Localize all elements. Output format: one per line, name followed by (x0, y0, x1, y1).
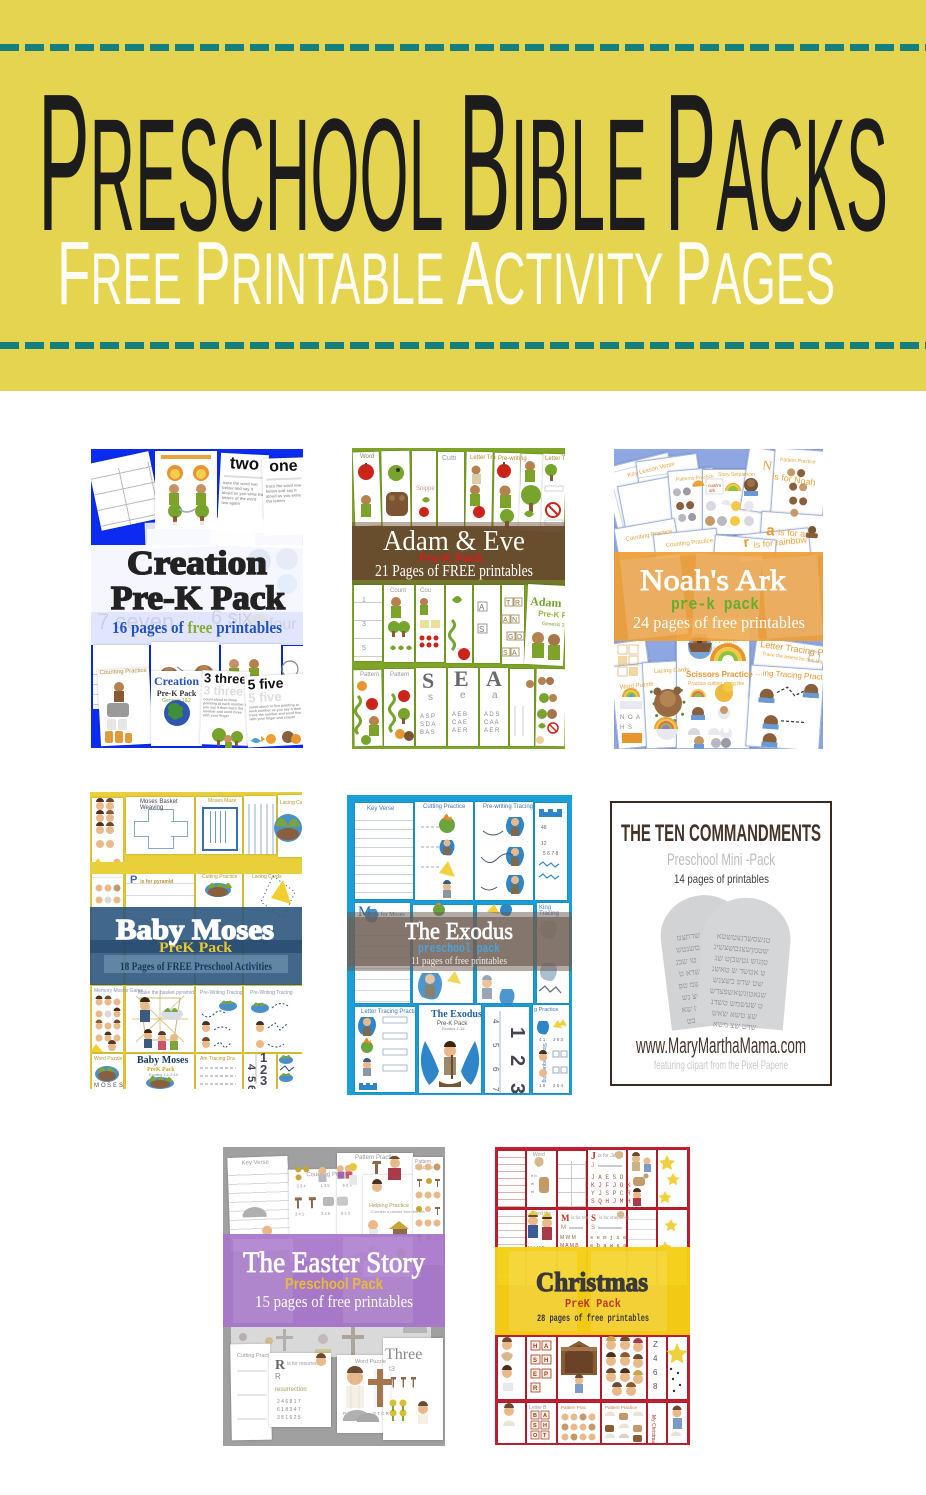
svg-text:15 pages of free printables: 15 pages of free printables (255, 1292, 413, 1311)
svg-text:M W M: M W M (560, 1235, 576, 1241)
svg-text:5: 5 (362, 645, 366, 652)
svg-text:A: A (543, 1413, 547, 1419)
svg-text:2 4 1: 2 4 1 (295, 1211, 305, 1216)
svg-text:Pre-K Pack: Pre-K Pack (111, 580, 285, 617)
svg-text:3: 3 (506, 1083, 528, 1094)
svg-text:B: B (533, 1413, 537, 1419)
svg-text:preschool pack: preschool pack (418, 941, 500, 956)
svg-text:M: M (94, 1083, 99, 1089)
svg-text:N: N (512, 617, 517, 624)
svg-text:Counting Practice: Counting Practice (625, 529, 673, 543)
svg-text:Y J S P C R: Y J S P C R (591, 1190, 631, 1197)
svg-text:S: S (591, 1225, 595, 1231)
svg-text:O: O (628, 715, 633, 721)
svg-text:O: O (533, 1433, 538, 1439)
svg-text:featuring clipart from the Pix: featuring clipart from the Pixel Paperie (654, 1058, 788, 1072)
svg-text:Story Sequencer: Story Sequencer (718, 472, 756, 478)
svg-text:1: 1 (362, 597, 366, 604)
svg-text:is for rainbow: is for rainbow (753, 534, 808, 550)
svg-text:R: R (515, 600, 520, 607)
svg-text:e: e (460, 690, 466, 701)
svg-text:Scissors Practice: Scissors Practice (686, 670, 753, 679)
svg-text:A: A (544, 1344, 549, 1350)
svg-text:The Exodus: The Exodus (431, 1009, 482, 1020)
svg-text:Cutting Pract: Cutting Pract (237, 1353, 269, 1359)
svg-text:FREE PRINTABLE ACTIVITY PAGES: FREE PRINTABLE ACTIVITY PAGES (57, 224, 835, 324)
svg-text:t3: t3 (389, 1366, 395, 1373)
svg-text:Preschool Mini -Pack: Preschool Mini -Pack (667, 850, 775, 869)
svg-text:m: m (531, 1181, 535, 1186)
svg-text:A: A (486, 666, 502, 691)
svg-text:resurrection: resurrection (275, 1387, 307, 1393)
svg-text:Pattern: Pattern (390, 672, 409, 678)
svg-text:2 6 4: 2 6 4 (553, 1083, 564, 1088)
svg-text:Word Puzzle: Word Puzzle (94, 1056, 122, 1062)
svg-text:A: A (512, 650, 517, 657)
svg-text:is for Ma: is for Ma (571, 1215, 589, 1220)
svg-text:4: 4 (245, 1064, 257, 1071)
svg-text:Exodus 1-15: Exodus 1-15 (442, 1026, 465, 1031)
svg-text:Pre-Writing Tracing: Pre-Writing Tracing (250, 990, 293, 996)
svg-text:6: 6 (491, 1067, 500, 1072)
svg-text:THE TEN COMMANDMENTS: THE TEN COMMANDMENTS (621, 820, 821, 847)
svg-text:P: P (544, 1372, 548, 1378)
svg-text:Word Puzzle: Word Puzzle (355, 1359, 386, 1365)
svg-text:14 pages of printables: 14 pages of printables (674, 872, 769, 886)
svg-text:Pre-K Pack: Pre-K Pack (538, 609, 565, 621)
svg-text:H: H (533, 1344, 537, 1350)
svg-text:S: S (503, 650, 508, 657)
svg-text:5 6: 5 6 (245, 1076, 257, 1089)
svg-text:2: 2 (506, 1055, 528, 1066)
svg-text:Counting Practice: Counting Practice (666, 538, 714, 549)
svg-text:Count: Count (390, 588, 406, 594)
svg-text:H: H (544, 1358, 548, 1364)
svg-text:6 5 3: 6 5 3 (341, 1211, 351, 1216)
svg-text:J: J (591, 1163, 594, 1169)
svg-text:6: 6 (653, 1368, 658, 1377)
svg-text:...ing Tracing Practice: ...ing Tracing Practice (756, 668, 823, 682)
svg-text:3: 3 (362, 621, 366, 628)
svg-text:Word: Word (360, 454, 374, 460)
svg-text:A: A (479, 603, 485, 612)
svg-text:S: S (479, 625, 484, 634)
svg-text:My Christmas: My Christmas (650, 1415, 656, 1445)
svg-text:S: S (628, 725, 632, 731)
svg-text:e b: e b (531, 1173, 537, 1178)
svg-text:A E R: A E R (484, 728, 500, 734)
svg-text:S: S (119, 1083, 123, 1089)
svg-text:4 1: 4 1 (539, 1037, 546, 1042)
svg-text:ark: ark (709, 488, 716, 493)
svg-text:3 8 1 6 2 5: 3 8 1 6 2 5 (277, 1415, 301, 1421)
svg-text:S Q H J M H: S Q H J M H (591, 1198, 631, 1205)
svg-text:Pre-writing: Pre-writing (498, 456, 527, 462)
svg-text:Pre-Writing Tracing: Pre-Writing Tracing (200, 990, 243, 996)
svg-text:M: M (561, 1225, 566, 1231)
svg-text:A E B: A E B (452, 712, 467, 718)
svg-text:R: R (533, 1386, 538, 1392)
svg-text:Pattern Practice: Pattern Practice (605, 1405, 638, 1410)
svg-text:7: 7 (491, 1087, 500, 1092)
svg-text:Memory Moses Game: Memory Moses Game (94, 988, 143, 994)
svg-text:Snippe: Snippe (416, 486, 435, 492)
svg-text:12: 12 (541, 841, 547, 847)
svg-text:Lacing Cards: Lacing Cards (280, 800, 302, 806)
svg-text:1 3 5: 1 3 5 (321, 1183, 331, 1188)
svg-text:Cou: Cou (420, 588, 431, 594)
svg-text:S: S (533, 1423, 537, 1429)
svg-text:24 pages of free printables: 24 pages of free printables (633, 613, 805, 632)
svg-text:r: r (743, 533, 751, 550)
svg-text:A: A (503, 617, 508, 624)
svg-text:T: T (506, 600, 511, 607)
svg-text:The Easter Story: The Easter Story (243, 1246, 425, 1279)
svg-text:C A E: C A E (452, 720, 467, 726)
svg-text:s e m j i e: s e m j i e (590, 1234, 626, 1241)
svg-text:G: G (508, 634, 513, 641)
svg-text:6 1 8 3 4 7: 6 1 8 3 4 7 (277, 1407, 301, 1413)
svg-text:Pattern Practice: Pattern Practice (780, 457, 816, 465)
svg-text:E: E (113, 1083, 117, 1089)
svg-text:1: 1 (506, 1027, 528, 1038)
svg-text:5 6 7 8: 5 6 7 8 (543, 851, 559, 857)
svg-text:Letter Tr: Letter Tr (545, 456, 565, 462)
svg-text:A E R: A E R (452, 728, 468, 734)
svg-text:Am Tracing Dra: Am Tracing Dra (200, 1056, 235, 1062)
svg-text:M: M (561, 1213, 570, 1223)
svg-text:PreK Pack: PreK Pack (159, 940, 233, 956)
svg-text:4: 4 (653, 1354, 658, 1363)
svg-text:18 Pages of FREE Preschool Act: 18 Pages of FREE Preschool Activities (120, 959, 272, 973)
svg-text:2 4 6 8 1 7: 2 4 6 8 1 7 (277, 1399, 301, 1405)
svg-text:E: E (454, 666, 469, 691)
svg-text:2 6 3: 2 6 3 (553, 1037, 564, 1042)
svg-text:Cutti: Cutti (442, 455, 457, 462)
svg-text:K J F J O K: K J F J O K (591, 1182, 631, 1189)
svg-text:s: s (428, 692, 433, 703)
svg-text:Pattern: Pattern (360, 672, 379, 678)
svg-text:11 pages of free printables: 11 pages of free printables (411, 955, 507, 967)
svg-text:Noah's Ark: Noah's Ark (640, 564, 786, 597)
svg-text:Creation: Creation (127, 545, 267, 582)
svg-text:Pattern Prac: Pattern Prac (561, 1405, 587, 1410)
svg-text:Practice cutting along the: Practice cutting along the (688, 681, 744, 687)
svg-text:E: E (533, 1372, 537, 1378)
svg-text:is for shepherd: is for shepherd (599, 1215, 629, 1220)
svg-text:16 pages of free printables: 16 pages of free printables (112, 618, 282, 637)
svg-text:A S P: A S P (420, 714, 435, 720)
svg-text:Word Puzzle: Word Puzzle (620, 681, 655, 691)
svg-text:Key Lesson Verse: Key Lesson Verse (627, 461, 676, 479)
svg-text:S D A: S D A (420, 722, 435, 728)
svg-text:R: R (275, 1358, 286, 1373)
svg-text:N: N (620, 715, 624, 721)
svg-text:3 4 5: 3 4 5 (321, 1211, 331, 1216)
svg-text:Three: Three (385, 1347, 422, 1363)
svg-text:D: D (517, 634, 522, 641)
svg-text:N: N (762, 457, 774, 473)
svg-text:8: 8 (653, 1382, 658, 1391)
svg-text:4: 4 (491, 1019, 500, 1024)
svg-text:5: 5 (491, 1043, 500, 1048)
svg-text:Make the basket pyramid: Make the basket pyramid (138, 990, 194, 996)
svg-text:Z: Z (653, 1340, 658, 1349)
svg-text:el: el (531, 1189, 534, 1194)
svg-text:B A S: B A S (420, 730, 435, 736)
svg-text:S: S (422, 668, 434, 693)
svg-text:www.MaryMarthaMama.com: www.MaryMarthaMama.com (635, 1033, 806, 1058)
svg-text:48: 48 (541, 825, 547, 831)
svg-text:Lacing Cards: Lacing Cards (654, 667, 690, 675)
svg-text:PreK Pack: PreK Pack (565, 1297, 621, 1311)
svg-text:Genesis 2-3: Genesis 2-3 (542, 621, 565, 629)
svg-text:21 Pages of FREE printables: 21 Pages of FREE printables (375, 561, 533, 580)
svg-text:3: 3 (260, 1073, 267, 1088)
svg-text:S: S (533, 1358, 537, 1364)
svg-text:Letter B: Letter B (529, 1405, 547, 1411)
svg-text:1 8: 1 8 (539, 1083, 546, 1088)
svg-text:Christmas: Christmas (536, 1267, 648, 1297)
svg-text:Letter Tra: Letter Tra (470, 455, 496, 461)
svg-text:C A A: C A A (484, 720, 499, 726)
svg-text:J: J (591, 1151, 596, 1162)
svg-text:Baby Moses: Baby Moses (137, 1055, 189, 1066)
svg-text:5 3 4: 5 3 4 (297, 1183, 307, 1188)
svg-text:S: S (107, 1083, 111, 1089)
svg-text:Preschool Pack: Preschool Pack (285, 1276, 383, 1293)
svg-text:H: H (543, 1423, 547, 1429)
svg-text:A: A (636, 715, 640, 721)
svg-text:A D S: A D S (484, 712, 499, 718)
svg-text:O: O (101, 1083, 106, 1089)
svg-text:H: H (620, 725, 624, 731)
svg-text:a: a (492, 690, 498, 701)
svg-text:28 pages of free printables: 28 pages of free printables (537, 1313, 649, 1325)
svg-text:R: R (275, 1372, 281, 1381)
svg-text:S: S (591, 1213, 596, 1223)
svg-text:J A E S D: J A E S D (591, 1174, 624, 1181)
